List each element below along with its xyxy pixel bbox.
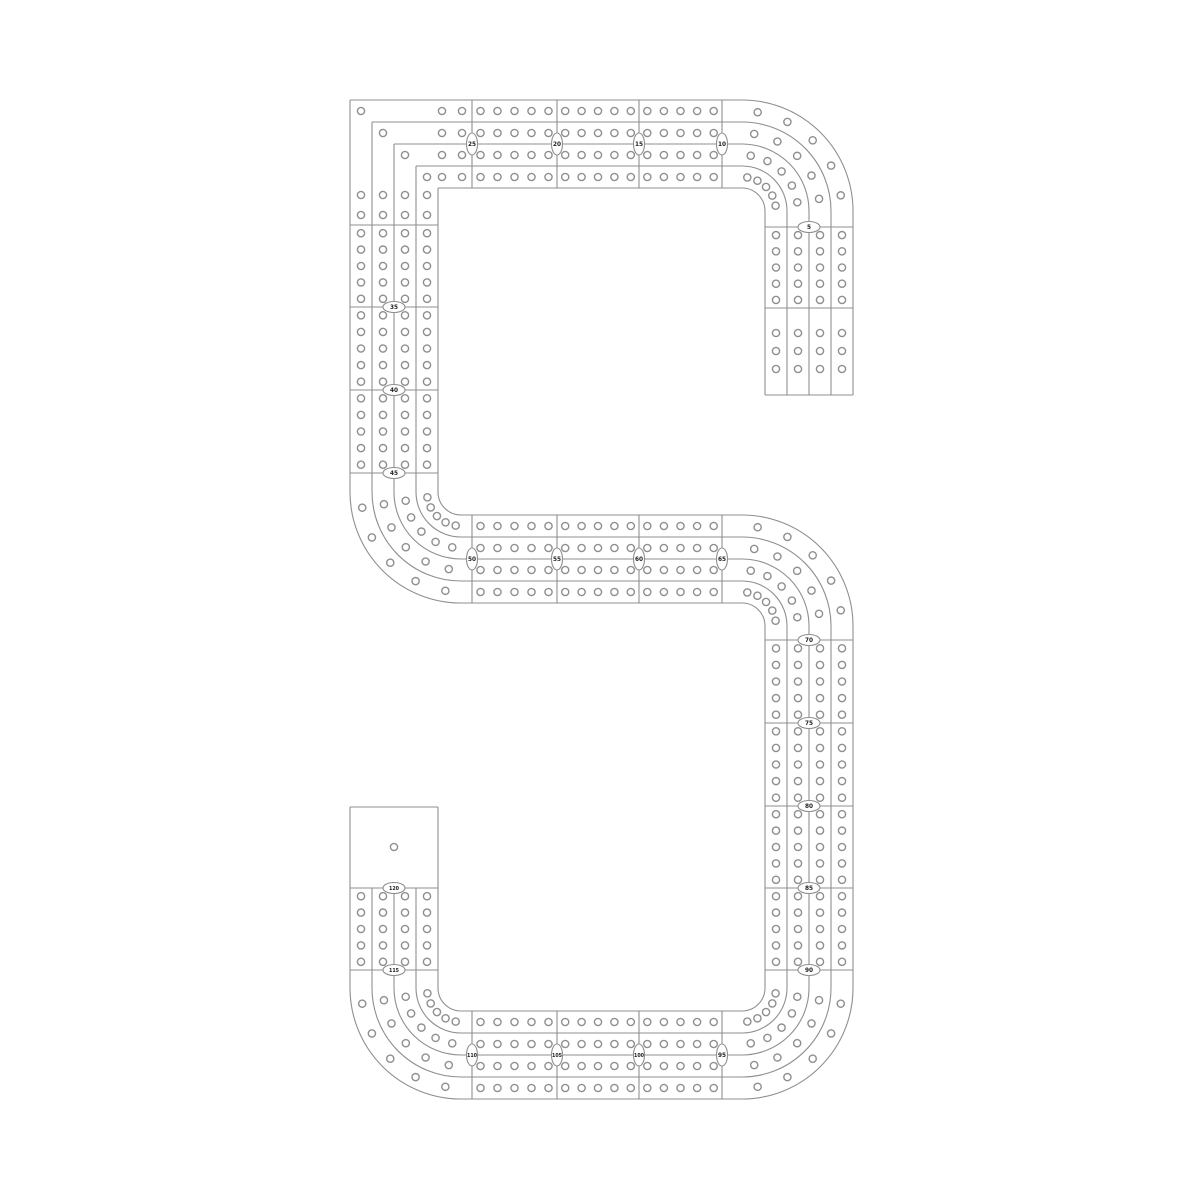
peg-hole bbox=[694, 1084, 701, 1091]
peg-hole bbox=[808, 587, 815, 594]
peg-hole bbox=[772, 893, 779, 900]
peg-hole bbox=[402, 497, 409, 504]
peg-hole bbox=[611, 522, 618, 529]
peg-hole bbox=[816, 893, 823, 900]
peg-hole bbox=[594, 107, 601, 114]
peg-hole bbox=[379, 893, 386, 900]
peg-hole bbox=[816, 925, 823, 932]
score-marker-110: 110 bbox=[467, 1044, 478, 1066]
peg-hole bbox=[423, 345, 430, 352]
peg-hole bbox=[762, 1008, 769, 1015]
peg-hole bbox=[379, 925, 386, 932]
peg-hole bbox=[423, 230, 430, 237]
peg-hole bbox=[794, 827, 801, 834]
peg-hole bbox=[528, 1084, 535, 1091]
marker-number: 120 bbox=[389, 886, 400, 892]
peg-hole bbox=[594, 544, 601, 551]
peg-hole bbox=[578, 588, 585, 595]
peg-hole bbox=[710, 1018, 717, 1025]
peg-hole bbox=[562, 588, 569, 595]
peg-hole bbox=[442, 587, 449, 594]
peg-hole bbox=[794, 860, 801, 867]
peg-hole bbox=[379, 279, 386, 286]
marker-number: 85 bbox=[805, 886, 813, 892]
marker-number: 65 bbox=[718, 557, 726, 563]
peg-hole bbox=[778, 583, 785, 590]
peg-hole bbox=[794, 199, 801, 206]
peg-hole bbox=[357, 461, 364, 468]
peg-hole bbox=[359, 1000, 366, 1007]
peg-hole bbox=[838, 347, 845, 354]
peg-hole bbox=[379, 958, 386, 965]
peg-hole bbox=[611, 151, 618, 158]
peg-hole bbox=[677, 1084, 684, 1091]
peg-hole bbox=[828, 577, 835, 584]
peg-hole bbox=[710, 173, 717, 180]
peg-hole bbox=[423, 893, 430, 900]
peg-hole bbox=[412, 578, 419, 585]
peg-hole bbox=[710, 588, 717, 595]
peg-hole bbox=[357, 191, 364, 198]
peg-hole bbox=[402, 544, 409, 551]
peg-hole bbox=[764, 1034, 771, 1041]
peg-hole bbox=[838, 761, 845, 768]
peg-hole bbox=[774, 1054, 781, 1061]
peg-hole bbox=[710, 1084, 717, 1091]
peg-hole bbox=[710, 544, 717, 551]
peg-hole bbox=[772, 827, 779, 834]
peg-hole bbox=[423, 461, 430, 468]
peg-hole bbox=[432, 538, 439, 545]
peg-hole bbox=[794, 744, 801, 751]
peg-hole bbox=[528, 588, 535, 595]
peg-hole bbox=[528, 151, 535, 158]
cribbage-board-diagram: 5101520253540455055606570758085909510010… bbox=[0, 0, 1200, 1200]
peg-hole bbox=[511, 129, 518, 136]
peg-hole bbox=[545, 1062, 552, 1069]
peg-hole bbox=[511, 588, 518, 595]
peg-hole bbox=[477, 588, 484, 595]
peg-hole bbox=[477, 544, 484, 551]
score-marker-75: 75 bbox=[798, 718, 820, 729]
peg-hole bbox=[423, 246, 430, 253]
peg-hole bbox=[772, 942, 779, 949]
peg-hole bbox=[794, 893, 801, 900]
peg-hole bbox=[423, 909, 430, 916]
peg-hole bbox=[694, 107, 701, 114]
peg-hole bbox=[838, 661, 845, 668]
peg-hole bbox=[432, 1034, 439, 1041]
peg-hole bbox=[379, 445, 386, 452]
peg-hole bbox=[379, 395, 386, 402]
peg-hole bbox=[545, 107, 552, 114]
score-marker-50: 50 bbox=[467, 548, 478, 570]
peg-hole bbox=[594, 566, 601, 573]
peg-hole bbox=[816, 728, 823, 735]
peg-hole bbox=[816, 347, 823, 354]
peg-hole bbox=[794, 567, 801, 574]
peg-hole bbox=[511, 1062, 518, 1069]
score-marker-25: 25 bbox=[467, 133, 478, 155]
peg-hole bbox=[545, 173, 552, 180]
marker-number: 55 bbox=[553, 557, 561, 563]
peg-hole bbox=[838, 695, 845, 702]
peg-hole bbox=[710, 1040, 717, 1047]
peg-hole bbox=[562, 1084, 569, 1091]
peg-hole bbox=[357, 958, 364, 965]
peg-hole bbox=[837, 1000, 844, 1007]
peg-hole bbox=[838, 876, 845, 883]
peg-hole bbox=[644, 1018, 651, 1025]
peg-hole bbox=[401, 958, 408, 965]
peg-hole bbox=[357, 445, 364, 452]
peg-hole bbox=[545, 129, 552, 136]
peg-hole bbox=[772, 990, 779, 997]
peg-hole bbox=[816, 365, 823, 372]
peg-hole bbox=[494, 173, 501, 180]
peg-hole bbox=[545, 1040, 552, 1047]
peg-hole bbox=[477, 566, 484, 573]
peg-hole bbox=[838, 778, 845, 785]
peg-hole bbox=[794, 296, 801, 303]
peg-hole bbox=[660, 566, 667, 573]
peg-hole bbox=[644, 1040, 651, 1047]
peg-hole bbox=[611, 129, 618, 136]
peg-hole bbox=[422, 558, 429, 565]
peg-hole bbox=[611, 1018, 618, 1025]
peg-hole bbox=[401, 312, 408, 319]
peg-hole bbox=[494, 522, 501, 529]
peg-hole bbox=[594, 129, 601, 136]
peg-hole bbox=[816, 843, 823, 850]
peg-hole bbox=[401, 191, 408, 198]
peg-hole bbox=[710, 107, 717, 114]
peg-hole bbox=[710, 151, 717, 158]
peg-hole bbox=[611, 107, 618, 114]
peg-hole bbox=[412, 1074, 419, 1081]
peg-hole bbox=[747, 152, 754, 159]
peg-hole bbox=[809, 552, 816, 559]
peg-hole bbox=[511, 566, 518, 573]
score-marker-65: 65 bbox=[717, 548, 728, 570]
peg-hole bbox=[660, 1084, 667, 1091]
peg-hole bbox=[423, 173, 430, 180]
peg-hole bbox=[611, 1084, 618, 1091]
peg-hole bbox=[751, 130, 758, 137]
peg-hole bbox=[838, 248, 845, 255]
peg-hole bbox=[644, 173, 651, 180]
peg-hole bbox=[838, 296, 845, 303]
peg-hole bbox=[808, 1020, 815, 1027]
peg-hole bbox=[838, 794, 845, 801]
peg-hole bbox=[754, 1083, 761, 1090]
peg-hole bbox=[772, 232, 779, 239]
peg-hole bbox=[772, 761, 779, 768]
peg-hole bbox=[545, 1018, 552, 1025]
peg-hole bbox=[408, 1010, 415, 1017]
peg-hole bbox=[494, 1062, 501, 1069]
peg-hole bbox=[694, 151, 701, 158]
peg-hole bbox=[772, 678, 779, 685]
peg-hole bbox=[611, 588, 618, 595]
peg-hole bbox=[794, 958, 801, 965]
peg-hole bbox=[660, 544, 667, 551]
peg-hole bbox=[528, 1040, 535, 1047]
peg-hole bbox=[423, 295, 430, 302]
peg-hole bbox=[794, 728, 801, 735]
peg-hole bbox=[433, 1008, 440, 1015]
marker-number: 90 bbox=[805, 968, 813, 974]
peg-hole bbox=[816, 958, 823, 965]
peg-hole bbox=[794, 695, 801, 702]
peg-hole bbox=[477, 1040, 484, 1047]
peg-hole bbox=[660, 588, 667, 595]
peg-hole bbox=[423, 378, 430, 385]
marker-number: 110 bbox=[467, 1053, 478, 1059]
marker-number: 95 bbox=[718, 1053, 726, 1059]
score-marker-90: 90 bbox=[798, 965, 820, 976]
peg-hole bbox=[401, 428, 408, 435]
score-marker-100: 100 bbox=[634, 1044, 645, 1066]
peg-hole bbox=[368, 1030, 375, 1037]
peg-hole bbox=[660, 151, 667, 158]
peg-hole bbox=[423, 925, 430, 932]
peg-hole bbox=[477, 1062, 484, 1069]
peg-hole bbox=[427, 1000, 434, 1007]
peg-hole bbox=[694, 129, 701, 136]
peg-hole bbox=[401, 909, 408, 916]
peg-hole bbox=[710, 566, 717, 573]
peg-hole bbox=[424, 494, 431, 501]
peg-hole bbox=[816, 778, 823, 785]
peg-hole bbox=[816, 860, 823, 867]
peg-hole bbox=[401, 295, 408, 302]
peg-hole bbox=[423, 279, 430, 286]
peg-hole bbox=[627, 522, 634, 529]
peg-hole bbox=[677, 588, 684, 595]
peg-hole bbox=[644, 151, 651, 158]
peg-hole bbox=[627, 107, 634, 114]
peg-hole bbox=[627, 588, 634, 595]
peg-hole bbox=[477, 522, 484, 529]
peg-hole bbox=[816, 329, 823, 336]
peg-hole bbox=[594, 1062, 601, 1069]
peg-hole bbox=[458, 107, 465, 114]
peg-hole bbox=[357, 428, 364, 435]
peg-hole bbox=[401, 411, 408, 418]
peg-hole bbox=[379, 295, 386, 302]
peg-hole bbox=[578, 1018, 585, 1025]
peg-hole bbox=[816, 264, 823, 271]
peg-hole bbox=[359, 504, 366, 511]
peg-hole bbox=[578, 173, 585, 180]
peg-hole bbox=[357, 107, 364, 114]
peg-hole bbox=[764, 573, 771, 580]
peg-hole bbox=[423, 942, 430, 949]
peg-hole bbox=[816, 678, 823, 685]
peg-hole bbox=[388, 1020, 395, 1027]
marker-number: 60 bbox=[635, 557, 643, 563]
peg-hole bbox=[660, 522, 667, 529]
peg-hole bbox=[808, 172, 815, 179]
peg-hole bbox=[357, 211, 364, 218]
score-marker-5: 5 bbox=[798, 222, 820, 233]
peg-hole bbox=[423, 328, 430, 335]
peg-hole bbox=[627, 129, 634, 136]
peg-hole bbox=[578, 1084, 585, 1091]
peg-hole bbox=[401, 893, 408, 900]
peg-hole bbox=[494, 566, 501, 573]
peg-hole bbox=[477, 1018, 484, 1025]
peg-hole bbox=[772, 843, 779, 850]
peg-hole bbox=[754, 592, 761, 599]
marker-number: 100 bbox=[634, 1053, 645, 1059]
peg-hole bbox=[784, 118, 791, 125]
marker-number: 5 bbox=[807, 225, 811, 231]
peg-hole bbox=[772, 296, 779, 303]
peg-hole bbox=[774, 553, 781, 560]
peg-hole bbox=[794, 993, 801, 1000]
peg-hole bbox=[677, 544, 684, 551]
peg-hole bbox=[528, 522, 535, 529]
peg-hole bbox=[816, 876, 823, 883]
peg-hole bbox=[511, 544, 518, 551]
peg-hole bbox=[644, 588, 651, 595]
peg-hole bbox=[357, 230, 364, 237]
peg-hole bbox=[677, 151, 684, 158]
peg-hole bbox=[390, 843, 397, 850]
peg-hole bbox=[423, 395, 430, 402]
peg-hole bbox=[379, 461, 386, 468]
peg-hole bbox=[772, 329, 779, 336]
peg-hole bbox=[838, 645, 845, 652]
peg-hole bbox=[828, 1030, 835, 1037]
peg-hole bbox=[562, 566, 569, 573]
peg-hole bbox=[816, 942, 823, 949]
peg-hole bbox=[838, 264, 845, 271]
peg-hole bbox=[772, 248, 779, 255]
peg-hole bbox=[762, 598, 769, 605]
peg-hole bbox=[401, 362, 408, 369]
peg-hole bbox=[357, 279, 364, 286]
score-marker-55: 55 bbox=[552, 548, 563, 570]
peg-hole bbox=[562, 107, 569, 114]
peg-hole bbox=[423, 211, 430, 218]
peg-hole bbox=[562, 173, 569, 180]
peg-hole bbox=[769, 192, 776, 199]
peg-hole bbox=[644, 107, 651, 114]
peg-hole bbox=[418, 1024, 425, 1031]
peg-hole bbox=[357, 345, 364, 352]
peg-hole bbox=[578, 522, 585, 529]
peg-hole bbox=[762, 183, 769, 190]
peg-hole bbox=[747, 567, 754, 574]
peg-hole bbox=[627, 1040, 634, 1047]
peg-hole bbox=[660, 129, 667, 136]
peg-hole bbox=[837, 607, 844, 614]
peg-hole bbox=[578, 129, 585, 136]
peg-hole bbox=[751, 1061, 758, 1068]
peg-hole bbox=[401, 279, 408, 286]
peg-hole bbox=[402, 1040, 409, 1047]
peg-hole bbox=[401, 942, 408, 949]
peg-hole bbox=[816, 761, 823, 768]
peg-hole bbox=[594, 173, 601, 180]
peg-hole bbox=[562, 544, 569, 551]
peg-holes bbox=[357, 107, 845, 1091]
peg-hole bbox=[379, 328, 386, 335]
peg-hole bbox=[562, 151, 569, 158]
score-marker-35: 35 bbox=[383, 302, 405, 313]
peg-hole bbox=[357, 411, 364, 418]
peg-hole bbox=[438, 173, 445, 180]
peg-hole bbox=[578, 1040, 585, 1047]
peg-hole bbox=[772, 778, 779, 785]
peg-hole bbox=[754, 1015, 761, 1022]
peg-hole bbox=[494, 544, 501, 551]
peg-hole bbox=[449, 1040, 456, 1047]
marker-number: 50 bbox=[468, 557, 476, 563]
peg-hole bbox=[838, 744, 845, 751]
peg-hole bbox=[816, 645, 823, 652]
peg-hole bbox=[594, 1084, 601, 1091]
peg-hole bbox=[644, 129, 651, 136]
peg-hole bbox=[387, 1055, 394, 1062]
peg-hole bbox=[751, 545, 758, 552]
peg-hole bbox=[423, 445, 430, 452]
peg-hole bbox=[401, 378, 408, 385]
peg-hole bbox=[794, 909, 801, 916]
peg-hole bbox=[677, 173, 684, 180]
peg-hole bbox=[677, 1018, 684, 1025]
peg-hole bbox=[511, 1040, 518, 1047]
peg-hole bbox=[379, 362, 386, 369]
peg-hole bbox=[778, 1024, 785, 1031]
peg-hole bbox=[545, 566, 552, 573]
peg-hole bbox=[423, 411, 430, 418]
peg-hole bbox=[828, 162, 835, 169]
peg-hole bbox=[423, 362, 430, 369]
peg-hole bbox=[772, 661, 779, 668]
peg-hole bbox=[838, 893, 845, 900]
peg-hole bbox=[401, 230, 408, 237]
peg-hole bbox=[442, 1083, 449, 1090]
peg-hole bbox=[778, 168, 785, 175]
peg-hole bbox=[677, 129, 684, 136]
peg-hole bbox=[578, 1062, 585, 1069]
peg-hole bbox=[794, 347, 801, 354]
score-marker-70: 70 bbox=[798, 635, 820, 646]
peg-hole bbox=[379, 312, 386, 319]
peg-hole bbox=[611, 1062, 618, 1069]
peg-hole bbox=[794, 329, 801, 336]
peg-hole bbox=[423, 958, 430, 965]
peg-hole bbox=[494, 1084, 501, 1091]
peg-hole bbox=[528, 173, 535, 180]
peg-hole bbox=[422, 1054, 429, 1061]
peg-hole bbox=[494, 151, 501, 158]
peg-hole bbox=[838, 232, 845, 239]
marker-number: 115 bbox=[389, 968, 399, 974]
peg-hole bbox=[794, 661, 801, 668]
peg-hole bbox=[594, 1018, 601, 1025]
peg-hole bbox=[379, 262, 386, 269]
peg-hole bbox=[769, 1000, 776, 1007]
peg-hole bbox=[401, 925, 408, 932]
peg-hole bbox=[627, 566, 634, 573]
peg-hole bbox=[816, 744, 823, 751]
marker-number: 45 bbox=[390, 471, 398, 477]
